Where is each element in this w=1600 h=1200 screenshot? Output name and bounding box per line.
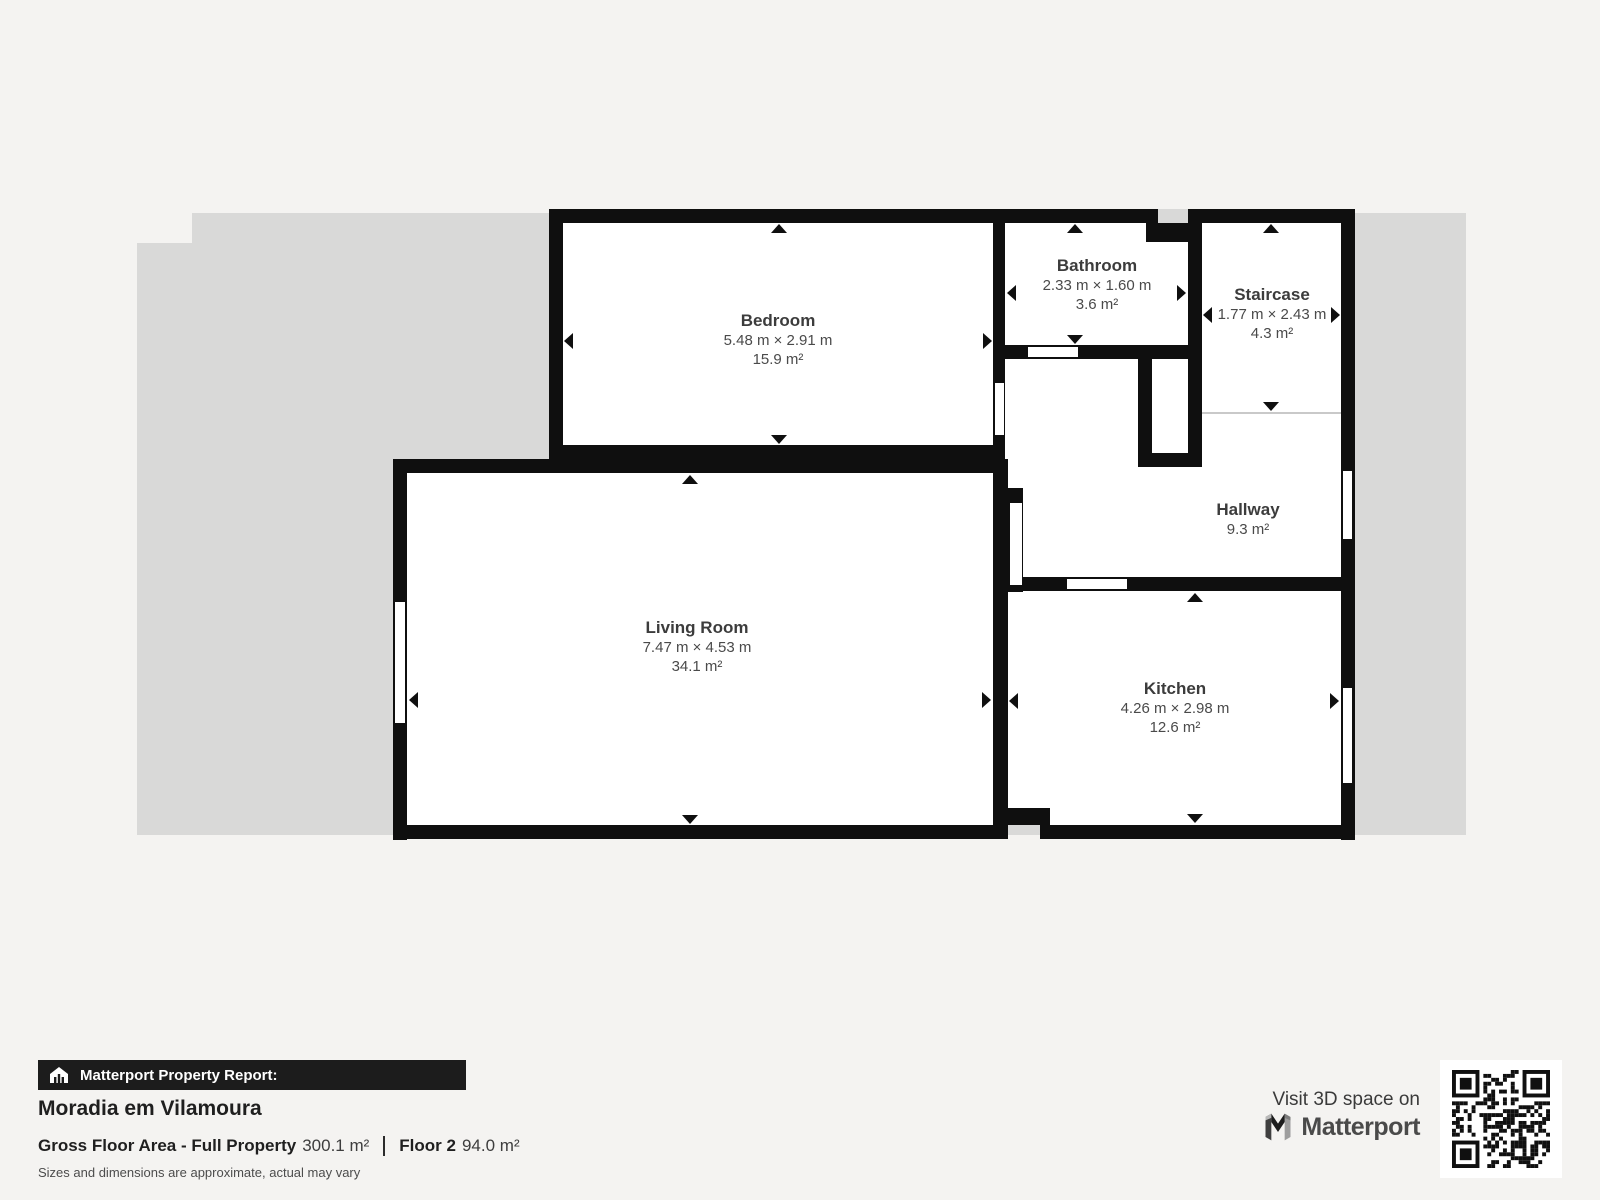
- floor-area-summary: Gross Floor Area - Full Property 300.1 m…: [38, 1134, 520, 1158]
- gross-floor-area-value: 300.1 m²: [302, 1134, 369, 1158]
- floor-label: Floor 2: [399, 1134, 456, 1158]
- property-name: Moradia em Vilamoura: [38, 1096, 262, 1122]
- report-banner-title: Matterport Property Report:: [80, 1067, 278, 1084]
- kitchen-door-opening: [1067, 579, 1127, 589]
- floor-plan-canvas: [0, 0, 1600, 1200]
- house-icon: [50, 1067, 68, 1083]
- kitchen-floor: [1007, 591, 1341, 825]
- kitchen-window: [1343, 688, 1352, 783]
- gross-floor-area-label: Gross Floor Area - Full Property: [38, 1134, 296, 1158]
- floor-plan-page: Bedroom 5.48 m × 2.91 m 15.9 m² Bathroom…: [0, 0, 1600, 1200]
- matterport-wordmark: Matterport: [1301, 1112, 1420, 1142]
- living-room-door-opening: [1010, 503, 1022, 585]
- qr-code: [1440, 1060, 1562, 1178]
- bathroom-door-opening: [1028, 347, 1078, 357]
- visit-3d-text: Visit 3D space on: [1272, 1089, 1420, 1111]
- floor-area-value: 94.0 m²: [462, 1134, 520, 1158]
- divider: [383, 1136, 385, 1156]
- bedroom-door-opening: [995, 383, 1004, 435]
- hallway-window: [1343, 471, 1352, 539]
- report-banner: Matterport Property Report:: [38, 1060, 466, 1090]
- matterport-logo-icon: [1263, 1112, 1293, 1142]
- living-room-floor: [407, 473, 993, 825]
- staircase-open-boundary: [1202, 412, 1341, 414]
- matterport-logo: Matterport: [1263, 1112, 1420, 1142]
- living-room-window: [395, 602, 405, 723]
- disclaimer-text: Sizes and dimensions are approximate, ac…: [38, 1165, 360, 1180]
- bedroom-floor: [562, 222, 993, 445]
